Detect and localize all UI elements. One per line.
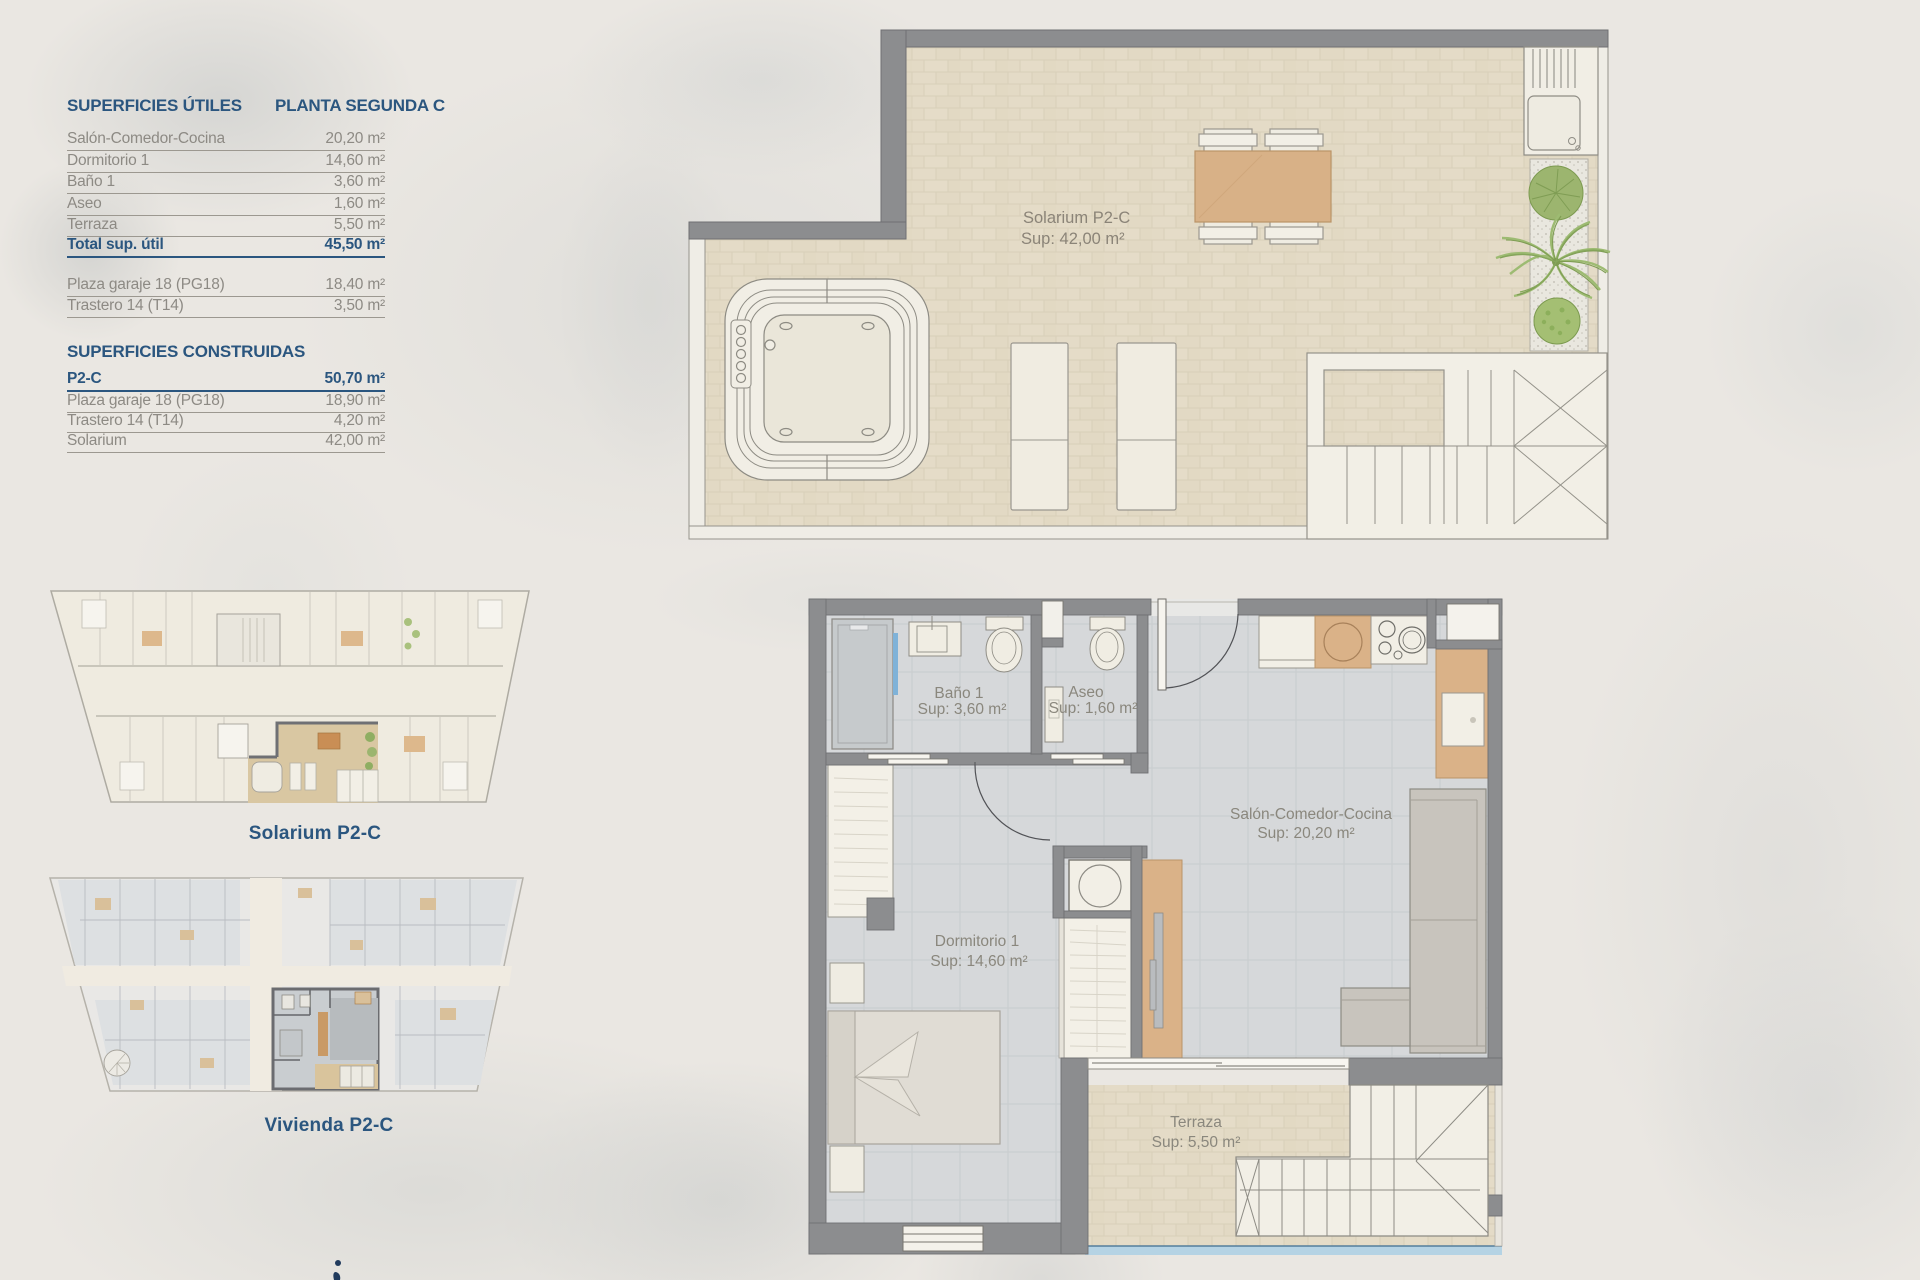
svg-text:Sup: 5,50 m²: Sup: 5,50 m²: [1152, 1134, 1241, 1151]
svg-text:Sup: 20,20 m²: Sup: 20,20 m²: [1257, 825, 1354, 842]
svg-text:Sup: 1,60 m²: Sup: 1,60 m²: [1049, 700, 1138, 717]
svg-text:Solarium P2-C: Solarium P2-C: [1023, 209, 1130, 227]
svg-text:Dormitorio 1: Dormitorio 1: [935, 933, 1019, 950]
svg-text:Sup: 14,60 m²: Sup: 14,60 m²: [930, 953, 1027, 970]
svg-text:Terraza: Terraza: [1170, 1114, 1222, 1131]
svg-text:Salón-Comedor-Cocina: Salón-Comedor-Cocina: [1230, 806, 1392, 823]
svg-text:Baño 1: Baño 1: [934, 685, 983, 702]
svg-text:Aseo: Aseo: [1068, 684, 1103, 701]
svg-text:Sup: 42,00 m²: Sup: 42,00 m²: [1021, 230, 1125, 248]
svg-text:Sup: 3,60 m²: Sup: 3,60 m²: [918, 701, 1007, 718]
